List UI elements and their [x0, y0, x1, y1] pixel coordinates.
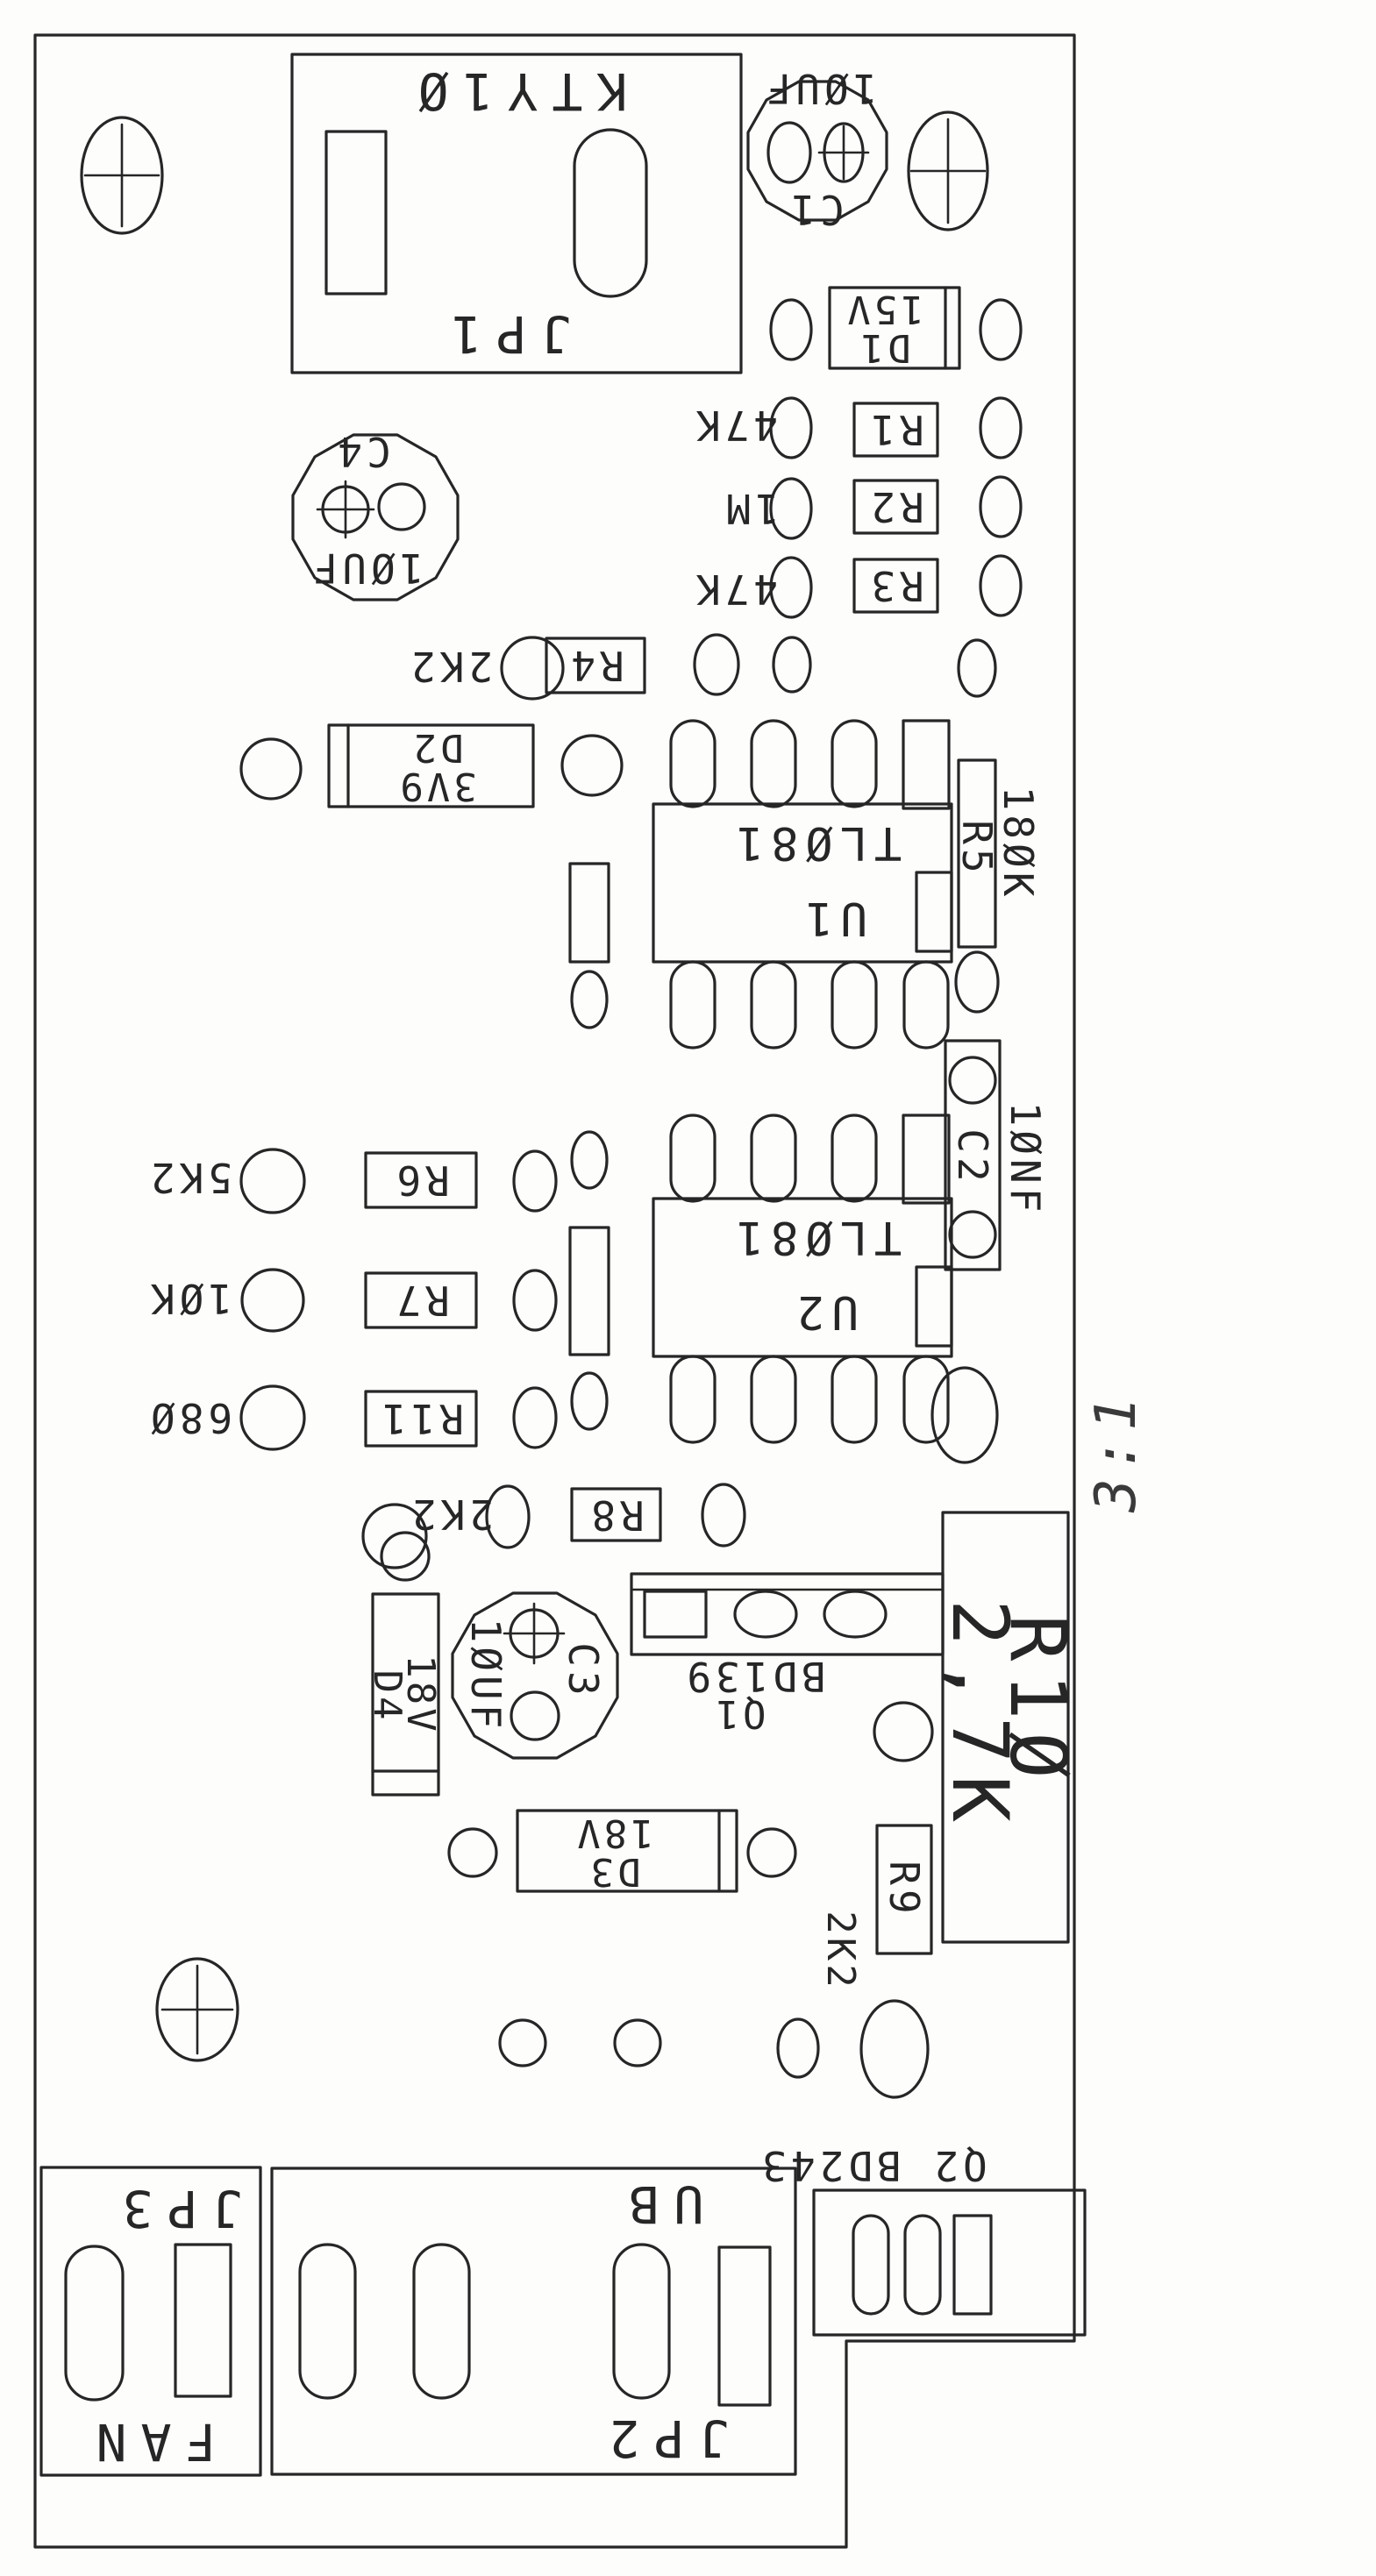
r5-value-label: 18ØK — [995, 786, 1042, 901]
c3-value-label: 1ØUF — [462, 1619, 510, 1733]
d3-name-label: D3 — [588, 1849, 641, 1894]
pad-pin1 — [903, 721, 949, 808]
pad — [874, 1703, 932, 1761]
pad — [379, 484, 424, 530]
jp2-name-label: JP2 — [595, 2409, 730, 2468]
pad — [824, 1591, 886, 1637]
pad — [574, 130, 646, 296]
ic-u2: TLØ81 U2 — [653, 1115, 952, 1442]
connector-jp1: KTY1Ø JP1 — [292, 54, 741, 373]
c3-name-label: C3 — [560, 1642, 607, 1699]
jp2-function-label: UB — [615, 2174, 704, 2234]
pad — [671, 1115, 715, 1201]
r1-value-label: 47K — [692, 402, 778, 449]
r9-value-label: 2K2 — [818, 1911, 863, 1990]
pad — [671, 1356, 715, 1442]
pad — [954, 2216, 991, 2314]
u1-name-label: U1 — [799, 892, 868, 944]
connector-jp3: JP3 FAN — [41, 2167, 260, 2475]
pad — [242, 1270, 303, 1331]
d4-value-label: 18V — [398, 1654, 443, 1734]
capacitor-c1: 1ØUF C1 — [748, 65, 887, 233]
pad — [414, 2245, 469, 2398]
pad — [572, 1132, 607, 1188]
resistor-r10: 2,7K R1Ø — [935, 1512, 1083, 1942]
pad — [381, 1533, 429, 1580]
q1-name-label: Q1 — [713, 1691, 766, 1736]
r10-name-label: R1Ø — [993, 1615, 1083, 1791]
pad — [752, 962, 795, 1048]
axial-part-c5 — [570, 864, 609, 1028]
pad — [752, 1356, 795, 1442]
pad — [752, 1115, 795, 1201]
r11-value-label: 68Ø — [146, 1394, 232, 1441]
pad — [959, 640, 995, 696]
pad — [748, 1829, 795, 1876]
bottom-pad-row — [500, 2001, 928, 2097]
transistor-q1: BD139 Q1 — [631, 1574, 943, 1761]
resistor-r2: 1M R2 — [722, 477, 1021, 538]
diode-d2: D2 3V9 — [241, 725, 622, 808]
diode-d4: D4 18V — [365, 1533, 443, 1795]
pad — [514, 1151, 556, 1211]
pad — [950, 1057, 995, 1103]
pad — [735, 1591, 796, 1637]
r7-value-label: 1ØK — [146, 1275, 232, 1322]
pad — [241, 1386, 304, 1449]
resistor-r8: 2K2 R8 — [363, 1484, 745, 1568]
mounting-hole-top-left — [82, 117, 162, 233]
connector-jp2: UB JP2 — [272, 2168, 795, 2474]
resistor-r3: 47K R3 — [692, 556, 1021, 617]
r8-name-label: R8 — [587, 1491, 644, 1539]
c2-name-label: C2 — [949, 1128, 996, 1185]
capacitor-c3: 1ØUF C3 — [453, 1593, 617, 1758]
r4-name-label: R4 — [567, 642, 624, 689]
pad — [449, 1829, 496, 1876]
r5-name-label: R5 — [953, 820, 1001, 877]
pad — [768, 123, 810, 182]
r1-name-label: R1 — [866, 406, 923, 453]
pad-pin1 — [903, 1115, 949, 1203]
resistor-r4: 2K2 R4 — [407, 635, 810, 699]
pad — [514, 1388, 556, 1448]
pad — [615, 2020, 660, 2066]
jp1-part-label: KTY1Ø — [404, 61, 628, 121]
r4-value-label: 2K2 — [407, 643, 493, 690]
u2-part-label: TLØ81 — [730, 1211, 902, 1263]
pad — [719, 2247, 770, 2405]
diode-d1: 15V D1 — [771, 287, 1021, 370]
pad — [832, 1356, 876, 1442]
capacitor-c2: C2 1ØNF — [945, 1041, 1049, 1270]
pad — [950, 1212, 995, 1257]
c4-name-label: C4 — [333, 428, 390, 475]
transistor-q2: Q2 BD243 — [758, 2142, 1085, 2335]
r11-name-label: R11 — [378, 1395, 464, 1442]
u1-part-label: TLØ81 — [730, 816, 902, 869]
mounting-hole-top-right — [909, 112, 987, 230]
pad — [572, 1373, 607, 1429]
pad — [572, 971, 607, 1028]
resistor-r6: 5K2 R6 — [146, 1149, 556, 1213]
pad — [175, 2245, 231, 2396]
pad — [980, 300, 1021, 359]
pad — [300, 2245, 355, 2398]
r6-name-label: R6 — [392, 1156, 449, 1204]
pad — [980, 398, 1021, 458]
pad — [502, 637, 563, 699]
ic-u1: TLØ81 U1 — [653, 721, 952, 1048]
large-pad — [861, 2001, 928, 2097]
resistor-r1: 47K R1 — [692, 398, 1021, 458]
pad — [771, 300, 811, 359]
pad — [752, 721, 795, 807]
pad — [904, 962, 948, 1048]
pad — [702, 1484, 745, 1546]
pad — [904, 1356, 948, 1442]
r8-value-label: 2K2 — [408, 1491, 494, 1538]
pad — [774, 637, 810, 692]
r3-name-label: R3 — [866, 562, 923, 609]
d3-value-label: 18V — [574, 1811, 653, 1855]
c2-value-label: 1ØNF — [1002, 1102, 1049, 1217]
pad — [562, 736, 622, 795]
jp3-function-label: FAN — [82, 2412, 217, 2472]
pcb-layout-canvas: KTY1Ø JP1 1ØUF C1 15V D1 47K R1 1M R2 47… — [0, 0, 1376, 2576]
c4-value-label: 1ØUF — [310, 544, 424, 592]
pad — [778, 2019, 818, 2077]
pad — [511, 1692, 559, 1740]
axial-part-c6 — [570, 1132, 609, 1429]
r7-name-label: R7 — [392, 1277, 449, 1324]
scale-annotation: 3:1 — [1084, 1390, 1149, 1513]
pad — [980, 477, 1021, 537]
d2-name-label: D2 — [410, 725, 464, 770]
mounting-hole-bottom-left — [157, 1959, 238, 2060]
u2-name-label: U2 — [790, 1285, 859, 1338]
pad — [514, 1270, 556, 1330]
scanned-pcb-drawing: KTY1Ø JP1 1ØUF C1 15V D1 47K R1 1M R2 47… — [0, 0, 1376, 2576]
r6-value-label: 5K2 — [146, 1154, 232, 1201]
r2-name-label: R2 — [866, 483, 923, 530]
r3-value-label: 47K — [692, 566, 778, 613]
c1-name-label: C1 — [787, 186, 844, 233]
pad — [326, 132, 386, 294]
diode-d3: 18V D3 — [449, 1811, 795, 1894]
resistor-r9: R9 2K2 — [818, 1825, 931, 1991]
c1-value-label: 1ØUF — [763, 65, 878, 112]
jp3-name-label: JP3 — [109, 2179, 243, 2238]
resistor-r5: R5 18ØK — [953, 640, 1042, 1012]
pad — [832, 1115, 876, 1201]
pad — [695, 635, 738, 694]
pad — [671, 721, 715, 807]
pad — [614, 2245, 669, 2398]
pad — [832, 962, 876, 1048]
jp1-name-label: JP1 — [438, 304, 572, 364]
pad — [932, 1368, 997, 1462]
pad — [671, 962, 715, 1048]
pad — [956, 952, 998, 1012]
pad — [66, 2246, 123, 2400]
pad — [241, 1149, 304, 1213]
d1-name-label: D1 — [858, 325, 911, 370]
pad — [832, 721, 876, 807]
pad — [241, 739, 301, 799]
pin1-notch — [916, 1267, 952, 1346]
pad — [645, 1591, 706, 1637]
d1-value-label: 15V — [844, 287, 923, 331]
pad — [853, 2216, 888, 2314]
resistor-r7: 1ØK R7 — [146, 1270, 556, 1331]
d2-value-label: 3V9 — [396, 764, 476, 808]
resistor-r11: 68Ø R11 — [146, 1386, 556, 1449]
pin1-notch — [916, 872, 952, 951]
pad — [500, 2020, 545, 2066]
q2-label: Q2 BD243 — [758, 2142, 987, 2189]
r9-name-label: R9 — [880, 1861, 928, 1918]
capacitor-c4: C4 1ØUF — [293, 428, 458, 600]
pad — [905, 2216, 940, 2314]
pad — [980, 556, 1021, 616]
